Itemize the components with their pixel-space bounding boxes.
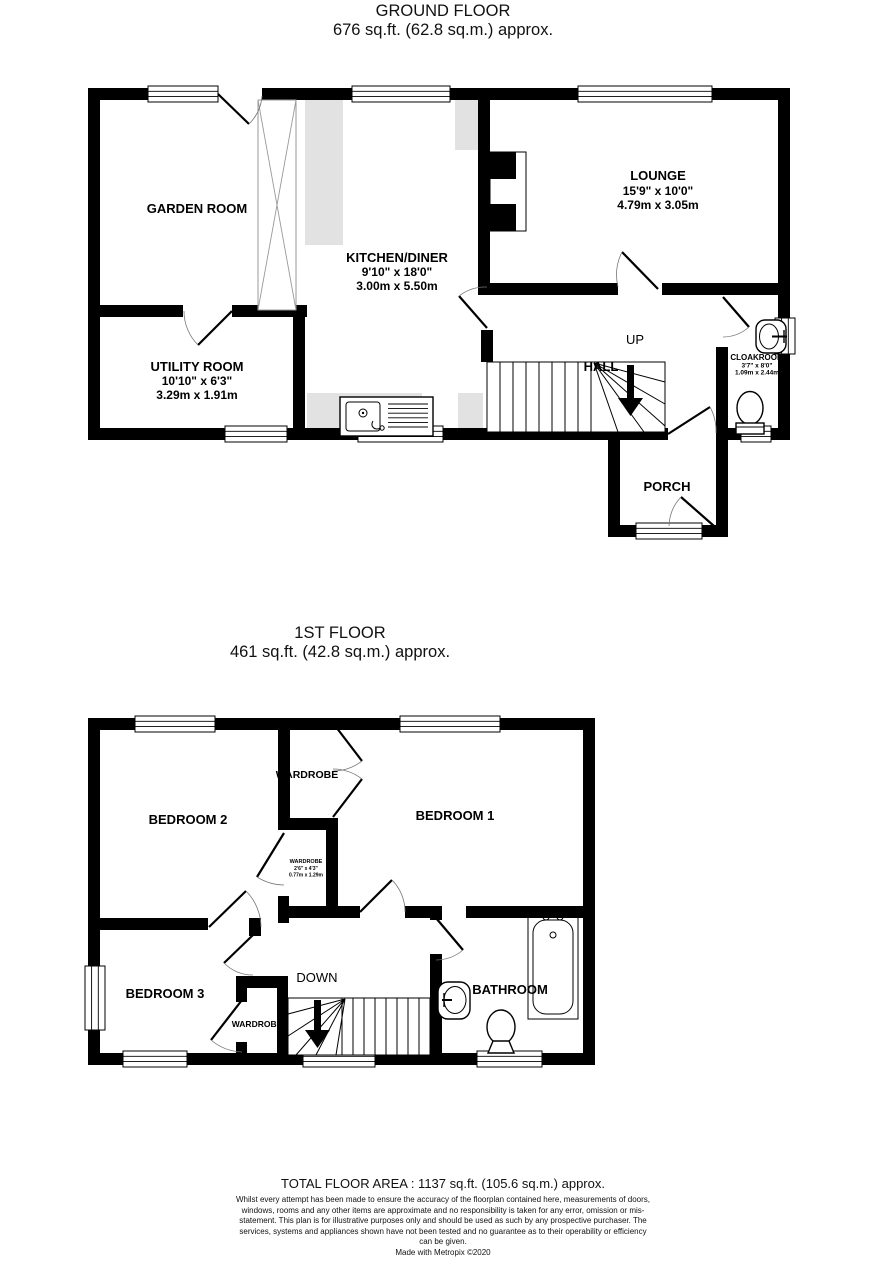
bedroom1-door xyxy=(360,880,405,912)
svg-text:CLOAKROOM: CLOAKROOM xyxy=(730,353,784,362)
window xyxy=(123,1051,187,1067)
cloakroom-door xyxy=(723,297,749,337)
first-floor-plan: BEDROOM 2 BEDROOM 1 BEDROOM 3 BATHROOM W… xyxy=(85,716,595,1067)
window xyxy=(135,716,215,732)
svg-text:2'6" x 4'3": 2'6" x 4'3" xyxy=(294,866,318,872)
front-door xyxy=(669,497,714,526)
bathroom-door xyxy=(436,918,463,960)
wardrobe-bedroom1-label: WARDROBE xyxy=(276,769,338,781)
svg-text:3.00m x 5.50m: 3.00m x 5.50m xyxy=(356,279,437,293)
bathroom-label: BATHROOM xyxy=(472,982,548,997)
lounge-label: LOUNGE 15'9" x 10'0" 4.79m x 3.05m xyxy=(617,168,698,212)
svg-text:WARDROBE: WARDROBE xyxy=(290,859,323,865)
window xyxy=(148,86,218,102)
window xyxy=(578,86,712,102)
utility-label: UTILITY ROOM 10'10" x 6'3" 3.29m x 1.91m xyxy=(151,359,244,402)
wardrobe-bedroom3-label: WARDROBE xyxy=(232,1019,283,1029)
bedroom3-door xyxy=(224,935,253,975)
down-label: DOWN xyxy=(296,970,337,985)
window xyxy=(400,716,500,732)
up-label: UP xyxy=(626,332,644,347)
hall-label: HALL xyxy=(584,359,619,374)
bath-icon xyxy=(528,913,578,1019)
garden-room-label: GARDEN ROOM xyxy=(147,201,247,216)
cloakroom-label: CLOAKROOM 3'7" x 8'0" 1.09m x 2.44m xyxy=(730,353,784,377)
lounge-door xyxy=(617,252,658,289)
svg-text:LOUNGE: LOUNGE xyxy=(630,168,686,183)
svg-text:KITCHEN/DINER: KITCHEN/DINER xyxy=(346,250,448,265)
metropix-credit: Made with Metropix ©2020 xyxy=(0,1248,886,1257)
svg-text:UTILITY ROOM: UTILITY ROOM xyxy=(151,359,244,374)
svg-text:0.77m x 1.29m: 0.77m x 1.29m xyxy=(289,873,323,879)
total-floor-area: TOTAL FLOOR AREA : 1137 sq.ft. (105.6 sq… xyxy=(0,1176,886,1191)
svg-text:3'7" x 8'0": 3'7" x 8'0" xyxy=(742,363,773,370)
wardrobe-small-label: WARDROBE 2'6" x 4'3" 0.77m x 1.29m xyxy=(289,859,323,879)
cloakroom-basin-icon xyxy=(756,320,787,353)
small-wardrobe-door xyxy=(257,833,284,885)
floorplan-page: GROUND FLOOR 676 sq.ft. (62.8 sq.m.) app… xyxy=(0,0,886,1262)
floorplan-drawing: GARDEN ROOM KITCHEN/DINER 9'10" x 18'0" … xyxy=(0,0,886,1262)
porch-label: PORCH xyxy=(644,479,691,494)
ground-floor-walls xyxy=(88,88,790,537)
stairs-down xyxy=(288,998,430,1055)
stairs-up xyxy=(487,362,665,432)
french-doors-panel xyxy=(258,100,296,310)
kitchen-label: KITCHEN/DINER 9'10" x 18'0" 3.00m x 5.50… xyxy=(346,250,448,293)
ground-floor-plan: GARDEN ROOM KITCHEN/DINER 9'10" x 18'0" … xyxy=(88,86,795,539)
window xyxy=(352,86,450,102)
footer: TOTAL FLOOR AREA : 1137 sq.ft. (105.6 sq… xyxy=(0,1176,886,1257)
svg-text:10'10" x 6'3": 10'10" x 6'3" xyxy=(162,374,232,388)
cloakroom-toilet-icon xyxy=(736,392,764,435)
bedroom3-label: BEDROOM 3 xyxy=(126,986,205,1001)
svg-text:15'9" x 10'0": 15'9" x 10'0" xyxy=(623,184,693,198)
bathroom-basin-icon xyxy=(438,982,470,1019)
kitchen-sink-icon xyxy=(340,397,433,436)
svg-text:9'10" x 18'0": 9'10" x 18'0" xyxy=(362,265,432,279)
window xyxy=(85,966,105,1030)
svg-text:3.29m x 1.91m: 3.29m x 1.91m xyxy=(156,388,237,402)
utility-door xyxy=(184,311,232,345)
bathroom-toilet-icon xyxy=(487,1010,515,1053)
svg-text:4.79m x 3.05m: 4.79m x 3.05m xyxy=(617,198,698,212)
fireplace-icon xyxy=(490,152,526,231)
window xyxy=(225,426,287,442)
bedroom1-label: BEDROOM 1 xyxy=(416,808,495,823)
disclaimer-text: Whilst every attempt has been made to en… xyxy=(233,1195,653,1248)
bedroom2-label: BEDROOM 2 xyxy=(149,812,228,827)
svg-text:1.09m x 2.44m: 1.09m x 2.44m xyxy=(735,370,779,377)
